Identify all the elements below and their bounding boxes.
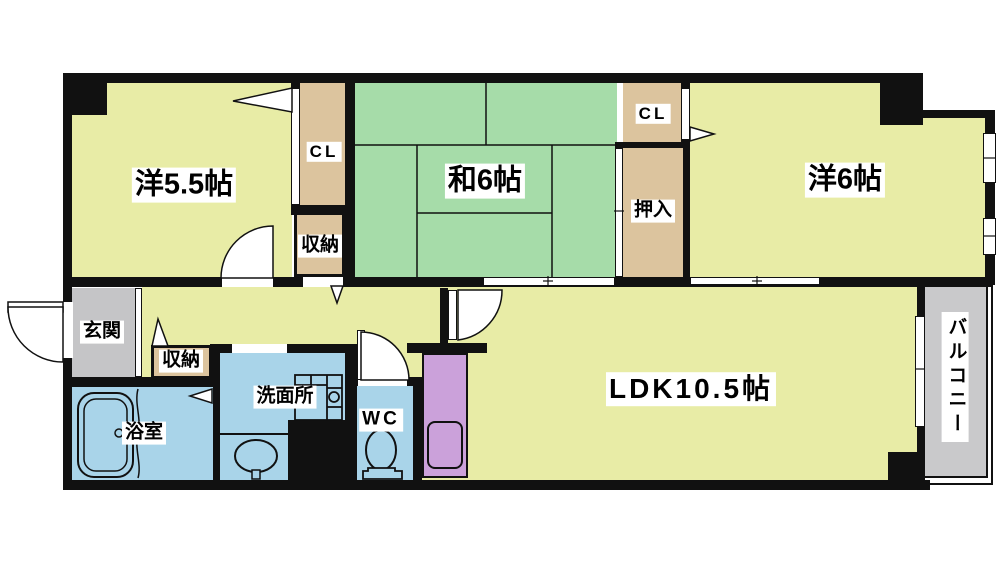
bathtub-inner bbox=[84, 399, 127, 471]
washbasin-pedestal bbox=[252, 470, 260, 479]
closet-a-door-triangle bbox=[233, 88, 292, 112]
label-ldk: LDK10.5帖 bbox=[606, 372, 776, 406]
label-western-5-5: 洋5.5帖 bbox=[132, 168, 236, 203]
sliding-door-ticks bbox=[543, 158, 996, 369]
label-oshiire: 押入 bbox=[631, 200, 675, 223]
label-western-6: 洋6帖 bbox=[805, 163, 885, 198]
label-closet-b: CL bbox=[636, 104, 671, 124]
storage-a-door-triangle bbox=[331, 286, 343, 303]
storage-b-door-triangle bbox=[152, 319, 168, 346]
washbasin-icon bbox=[235, 440, 277, 472]
toilet-tank-icon bbox=[363, 468, 402, 479]
label-storage-b: 収納 bbox=[159, 350, 203, 373]
label-entrance: 玄関 bbox=[80, 321, 124, 344]
entrance-door-arc bbox=[8, 307, 63, 362]
hall-ldk-door-arc bbox=[458, 290, 502, 340]
closet-b-door-triangle bbox=[690, 127, 714, 141]
label-wc: WC bbox=[359, 409, 403, 432]
label-closet-a: CL bbox=[307, 142, 342, 162]
lineart-layer bbox=[0, 0, 1000, 562]
kitchen-sink-icon bbox=[428, 422, 462, 468]
label-washroom: 洗面所 bbox=[253, 386, 316, 409]
floorplan-canvas: 洋5.5帖 和6帖 洋6帖 LDK10.5帖 玄関 CL 収納 CL 押入 収納… bbox=[0, 0, 1000, 562]
label-japanese-6: 和6帖 bbox=[445, 164, 525, 199]
western5-door-arc bbox=[221, 226, 273, 278]
wc-door-arc bbox=[361, 332, 409, 380]
label-storage-a: 収納 bbox=[298, 235, 342, 258]
label-bathroom: 浴室 bbox=[122, 422, 166, 445]
bath-door-triangle bbox=[190, 389, 212, 403]
toilet-bowl-icon bbox=[366, 430, 396, 470]
label-balcony: バルコニー bbox=[942, 312, 969, 442]
